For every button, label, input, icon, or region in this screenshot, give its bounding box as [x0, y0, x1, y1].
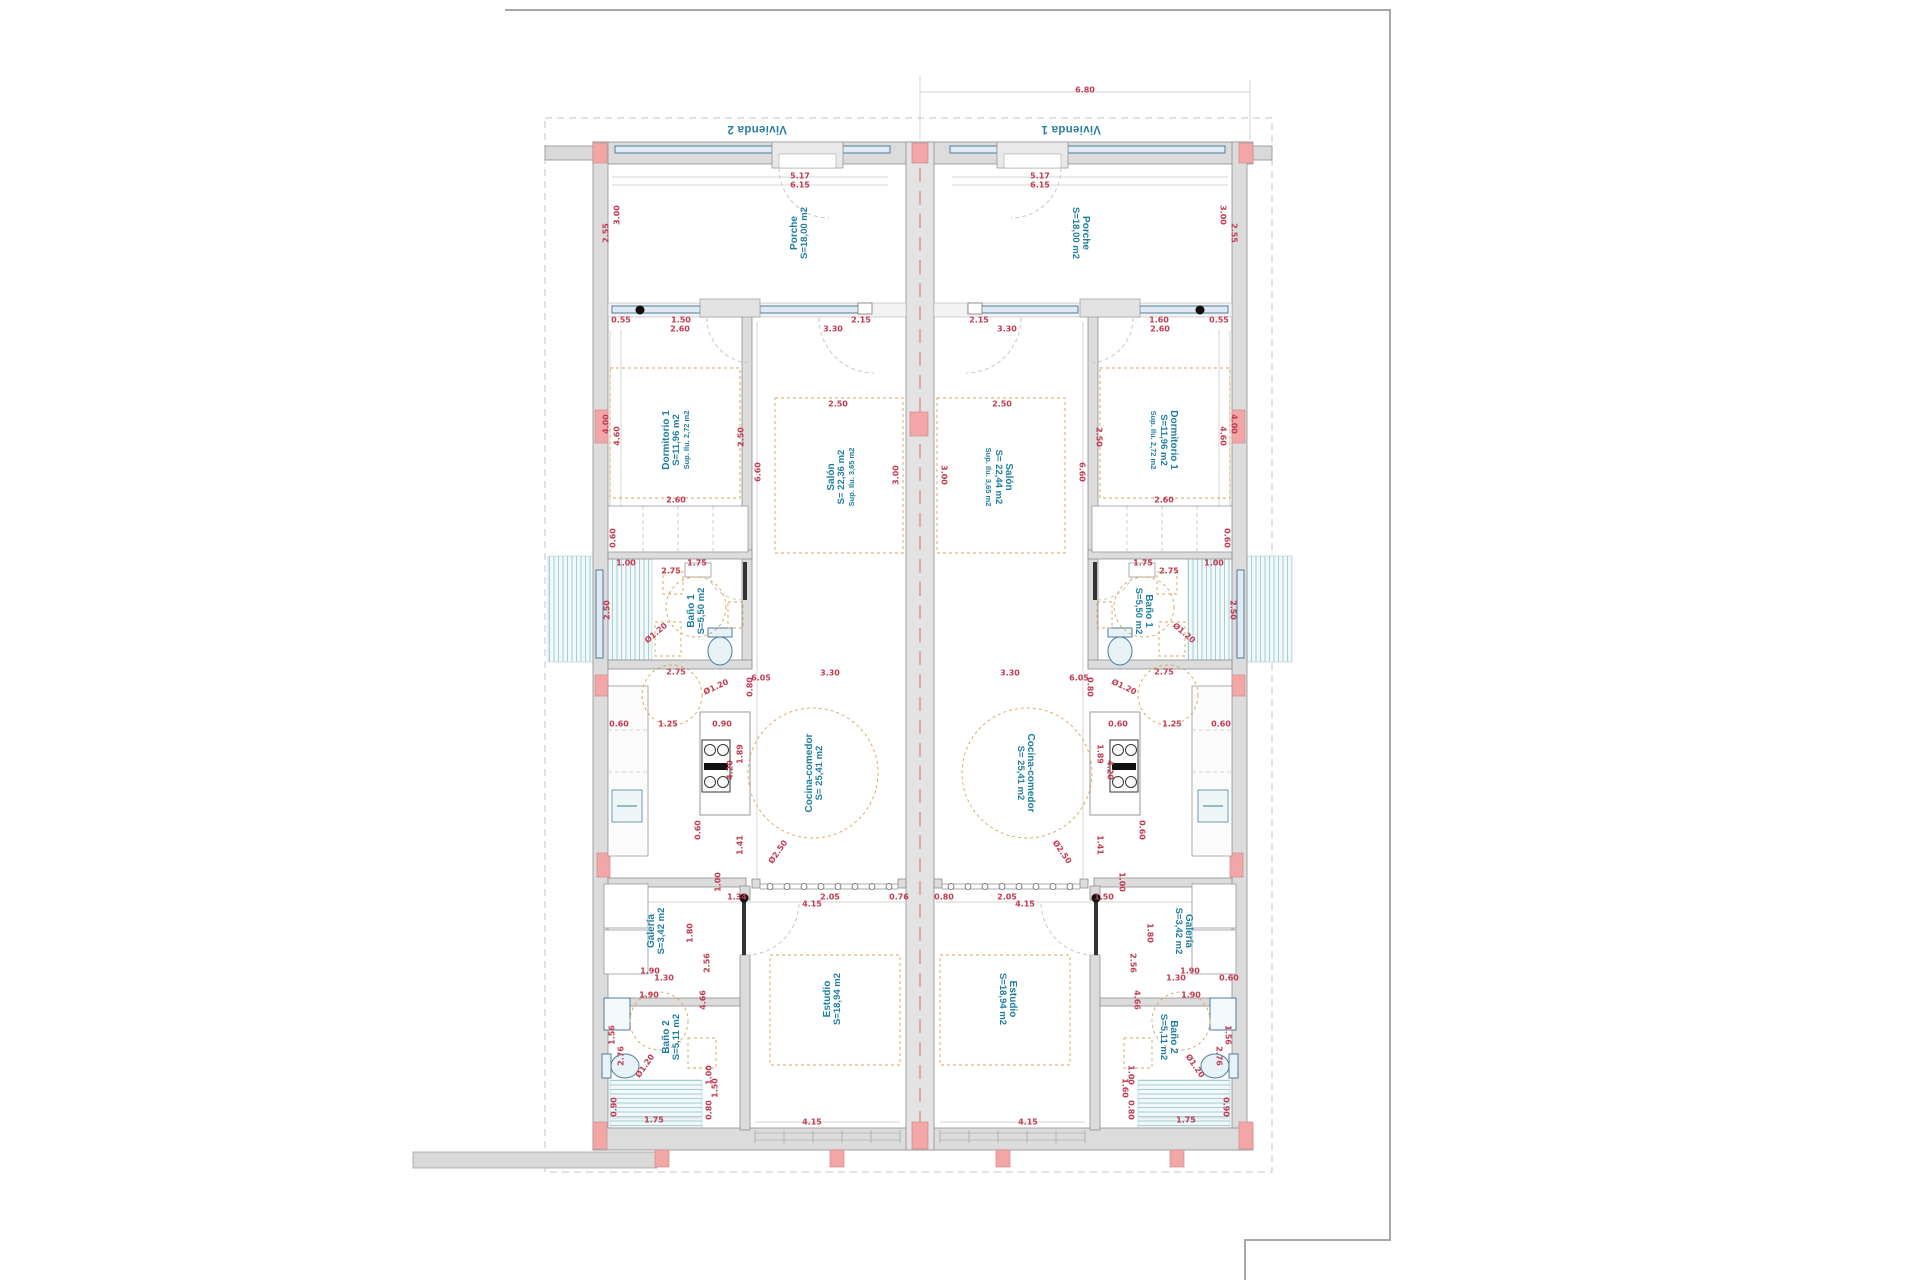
dimension-label: 2.56 — [1129, 953, 1138, 973]
room-label: EstudioS=18,94 m2 — [822, 973, 844, 1025]
dimension-label: 1.75 — [687, 559, 707, 568]
dimension-label: 2.50 — [603, 600, 612, 620]
room-label: PorcheS=18,00 m2 — [789, 207, 811, 259]
room-label-line: Vivienda 2 — [727, 123, 787, 135]
dimension-label: 2.60 — [666, 496, 686, 505]
dimension-label: 2.55 — [602, 223, 611, 243]
dimension-label: 0.80 — [1127, 1100, 1136, 1120]
dimension-label: 1.50 — [711, 1078, 720, 1098]
dimension-label: 1.30 — [654, 974, 674, 983]
dimension-label: 0.60 — [1108, 720, 1128, 729]
dimension-label: 2.56 — [703, 953, 712, 973]
room-label: SalónS= 22,36 m2Sup. Ilu. 3,65 m2 — [826, 448, 856, 507]
room-label-line: S=18,94 m2 — [833, 973, 844, 1025]
dimension-label: 5.17 — [1030, 172, 1050, 181]
floor-plan-drawing — [0, 0, 1920, 1280]
dimension-label: 3.30 — [823, 325, 843, 334]
dimension-label: 0.60 — [609, 528, 618, 548]
dimension-label: 4.66 — [699, 990, 708, 1010]
room-label: Cocina-comedorS= 25,41 m2 — [1014, 734, 1036, 813]
dimension-label: 4.00 — [1230, 414, 1239, 434]
dimension-label: 2.76 — [617, 1046, 626, 1066]
dimension-label: 3.00 — [892, 465, 901, 485]
dimension-label: 0.60 — [609, 720, 629, 729]
room-label: Baño 1S=5,50 m2 — [686, 588, 708, 635]
dimension-label: 1.50 — [671, 316, 691, 325]
room-label-line: S=18,00 m2 — [1069, 207, 1080, 259]
dimension-label: 1.41 — [736, 835, 745, 855]
dimension-label: 4.60 — [1219, 426, 1228, 446]
floor-plan-canvas: Vivienda 2Vivienda 1PorcheS=18,00 m2Porc… — [0, 0, 1920, 1280]
dimension-label: 6.15 — [790, 181, 810, 190]
room-label-line: Galería — [1183, 908, 1194, 955]
dimension-label: 3.30 — [820, 669, 840, 678]
dimension-label: 2.50 — [737, 427, 746, 447]
room-label-line: Sup. Ilu. 3,65 m2 — [984, 448, 992, 507]
room-label-line: S=5,50 m2 — [697, 588, 708, 635]
dimension-label: 2.15 — [851, 316, 871, 325]
dimension-label: 4.00 — [602, 414, 611, 434]
room-label-line: S=3,42 m2 — [657, 908, 668, 955]
room-label-line: Baño 2 — [1168, 1014, 1179, 1060]
room-label: Dormitorio 1S=11,96 m2Sup. Ilu. 2,72 m2 — [661, 410, 691, 469]
dimension-label: 0.80 — [746, 677, 755, 697]
room-label-line: S=18,94 m2 — [996, 973, 1007, 1025]
dimension-label: 1.89 — [736, 744, 745, 764]
room-label: Baño 2S=5,11 m2 — [661, 1014, 683, 1060]
dimension-label: 4.15 — [802, 900, 822, 909]
dimension-label: 4.15 — [1018, 1118, 1038, 1127]
room-label: Baño 2S=5,11 m2 — [1157, 1014, 1179, 1060]
room-label-line: Baño 1 — [1143, 588, 1154, 635]
dimension-label: 6.80 — [1075, 86, 1095, 95]
room-label: PorcheS=18,00 m2 — [1069, 207, 1091, 259]
room-label-line: Porche — [1080, 207, 1091, 259]
dimension-label: 6.15 — [1030, 181, 1050, 190]
dimension-label: 0.60 — [694, 820, 703, 840]
room-label-line: S=5,11 m2 — [1157, 1014, 1168, 1060]
dimension-label: 0.60 — [1219, 974, 1239, 983]
dimension-label: 4.20 — [726, 760, 735, 780]
unit-label: Vivienda 2 — [727, 123, 787, 135]
room-label-line: Sup. Ilu. 2,72 m2 — [1149, 410, 1157, 469]
dimension-label: 2.75 — [666, 668, 686, 677]
dimension-label: 0.90 — [1222, 1097, 1231, 1117]
dimension-label: 3.00 — [940, 465, 949, 485]
dimension-label: 2.60 — [1150, 325, 1170, 334]
dimension-label: 2.60 — [1154, 496, 1174, 505]
dimension-label: 3.30 — [997, 325, 1017, 334]
dimension-label: 3.00 — [1219, 205, 1228, 225]
dimension-label: 1.00 — [616, 559, 636, 568]
dimension-label: 2.76 — [1215, 1046, 1224, 1066]
room-label: SalónS= 22,44 m2Sup. Ilu. 3,65 m2 — [984, 448, 1014, 507]
unit-label: Vivienda 1 — [1041, 123, 1101, 135]
dimension-label: 5.17 — [790, 172, 810, 181]
dimension-label: 4.66 — [1133, 990, 1142, 1010]
dimension-label: 2.75 — [1154, 668, 1174, 677]
dimension-label: 1.56 — [608, 1025, 617, 1045]
dimension-label: 0.55 — [611, 316, 631, 325]
dimension-label: 1.00 — [714, 872, 723, 892]
dimension-label: 1.89 — [1096, 744, 1105, 764]
room-label: GaleríaS=3,42 m2 — [646, 908, 668, 955]
dimension-label: 1.75 — [1133, 559, 1153, 568]
room-label-line: S= 25,41 m2 — [1014, 734, 1025, 813]
dimension-label: 1.60 — [1149, 316, 1169, 325]
dimension-label: 1.41 — [1096, 835, 1105, 855]
dimension-label: 6.60 — [1078, 462, 1087, 482]
room-label: GaleríaS=3,42 m2 — [1172, 908, 1194, 955]
dimension-label: 1.25 — [658, 720, 678, 729]
dimension-label: 4.60 — [613, 426, 622, 446]
dimension-label: 1.50 — [1094, 893, 1114, 902]
dimension-label: 0.80 — [1086, 677, 1095, 697]
dimension-label: 1.60 — [1121, 1078, 1130, 1098]
room-label: EstudioS=18,94 m2 — [996, 973, 1018, 1025]
dimension-label: 1.75 — [1176, 1116, 1196, 1125]
dimension-label: 0.60 — [1211, 720, 1231, 729]
room-label-line: Cocina-comedor — [1025, 734, 1036, 813]
room-label-line: S=11,96 m2 — [1157, 410, 1168, 469]
dimension-label: 3.30 — [1000, 669, 1020, 678]
dimension-label: 1.90 — [639, 991, 659, 1000]
dimension-label: 1.56 — [1224, 1025, 1233, 1045]
dimension-label: 2.50 — [1229, 600, 1238, 620]
dimension-label: 0.55 — [1209, 316, 1229, 325]
dimension-label: 0.80 — [934, 893, 954, 902]
room-label-line: S=5,50 m2 — [1132, 588, 1143, 635]
dimension-label: 2.05 — [820, 893, 840, 902]
dimension-label: 1.34 — [727, 893, 747, 902]
dimension-label: 4.20 — [1106, 760, 1115, 780]
room-label-line: S=3,42 m2 — [1172, 908, 1183, 955]
dimension-label: 2.15 — [969, 316, 989, 325]
room-label-line: Sup. Ilu. 3,65 m2 — [848, 448, 856, 507]
dimension-label: 2.50 — [828, 400, 848, 409]
dimension-label: 0.60 — [1223, 528, 1232, 548]
room-label: Dormitorio 1S=11,96 m2Sup. Ilu. 2,72 m2 — [1149, 410, 1179, 469]
dimension-label: 2.55 — [1230, 223, 1239, 243]
dimension-label: 2.50 — [1095, 427, 1104, 447]
dimension-label: 4.15 — [802, 1118, 822, 1127]
dimension-label: 4.15 — [1015, 900, 1035, 909]
dimension-label: 0.90 — [610, 1097, 619, 1117]
dimension-label: 0.80 — [705, 1100, 714, 1120]
dimension-label: 3.00 — [613, 205, 622, 225]
room-label-line: Dormitorio 1 — [1168, 410, 1179, 469]
dimension-label: 1.80 — [686, 923, 695, 943]
dimension-label: 1.30 — [1166, 974, 1186, 983]
dimension-label: 1.25 — [1162, 720, 1182, 729]
room-label-line: S=5,11 m2 — [672, 1014, 683, 1060]
dimension-label: 2.75 — [1159, 567, 1179, 576]
room-label: Baño 1S=5,50 m2 — [1132, 588, 1154, 635]
room-label-line: Estudio — [1007, 973, 1018, 1025]
dimension-label: 0.76 — [889, 893, 909, 902]
dimension-label: 1.90 — [1181, 991, 1201, 1000]
room-label-line: S=18,00 m2 — [800, 207, 811, 259]
dimension-label: 1.80 — [1146, 923, 1155, 943]
dimension-label: 2.60 — [670, 325, 690, 334]
dimension-label: 1.75 — [644, 1116, 664, 1125]
dimension-label: 0.90 — [712, 720, 732, 729]
dimension-label: 2.75 — [661, 567, 681, 576]
room-label: Cocina-comedorS= 25,41 m2 — [804, 734, 826, 813]
room-label-line: Sup. Ilu. 2,72 m2 — [683, 410, 691, 469]
dimension-label: 2.50 — [992, 400, 1012, 409]
room-label-line: S= 22,44 m2 — [992, 448, 1003, 507]
dimension-label: 2.05 — [997, 893, 1017, 902]
dimension-label: 6.60 — [754, 462, 763, 482]
dimension-label: 1.00 — [1204, 559, 1224, 568]
dimension-label: 0.60 — [1138, 820, 1147, 840]
room-label-line: Vivienda 1 — [1041, 123, 1101, 135]
room-label-line: Salón — [1003, 448, 1014, 507]
room-label-line: S= 25,41 m2 — [815, 734, 826, 813]
dimension-label: 1.00 — [1118, 872, 1127, 892]
